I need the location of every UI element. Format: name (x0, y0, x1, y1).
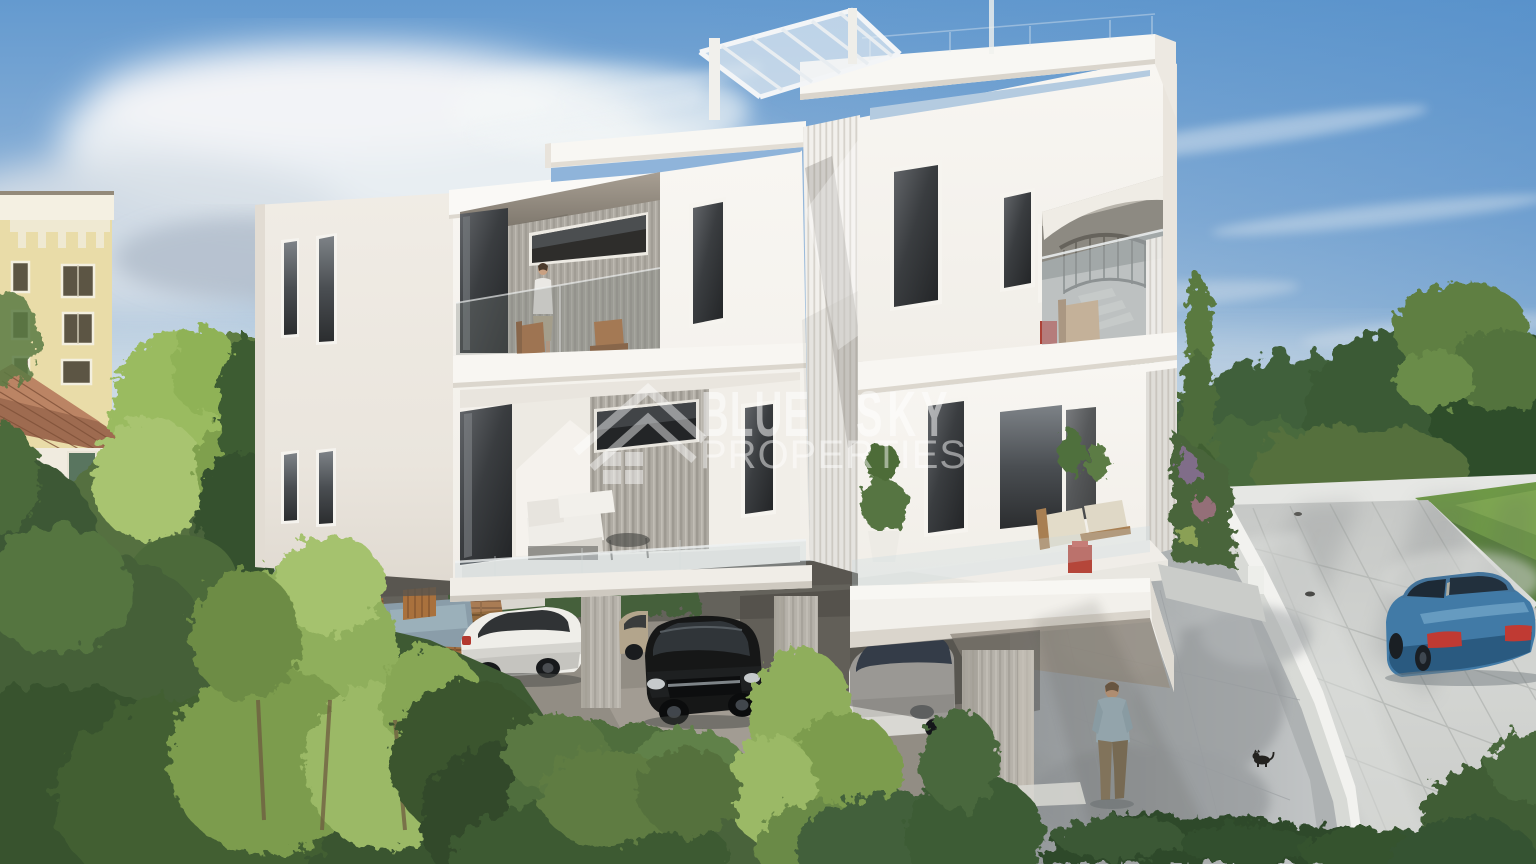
svg-text:PROPERTIES: PROPERTIES (700, 433, 967, 477)
